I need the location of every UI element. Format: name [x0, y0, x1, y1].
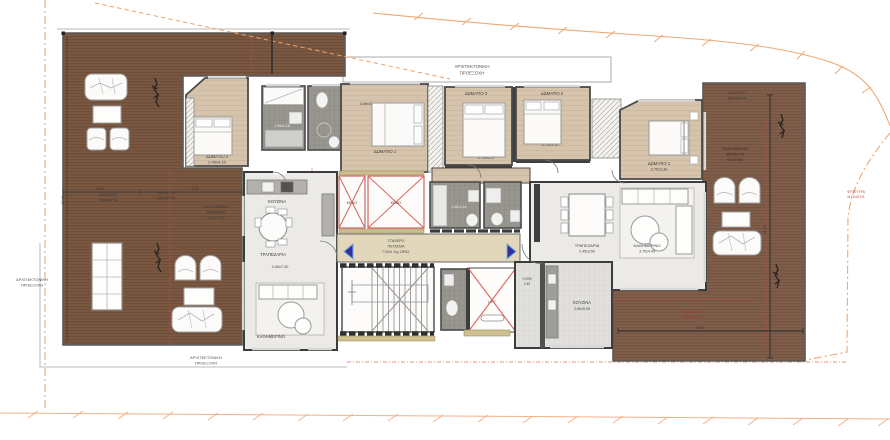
svg-text:ΚΑΘΗΜΕΡΙΝΟ: ΚΑΘΗΜΕΡΙΝΟ: [257, 334, 286, 339]
svg-text:ΚΕΝΟ: ΚΕΝΟ: [391, 201, 402, 205]
svg-text:ΔΩΜΑΤΙΟ 3: ΔΩΜΑΤΙΟ 3: [465, 91, 488, 96]
svg-text:ΠΡΟΕΞΟΧΗ: ΠΡΟΕΞΟΧΗ: [21, 283, 44, 288]
svg-text:ΔΩΜΑΤΙΟ 1: ΔΩΜΑΤΙΟ 1: [648, 161, 671, 166]
svg-text:ΑΝΟΙΚΤΗ: ΑΝΟΙΚΤΗ: [99, 192, 117, 197]
svg-text:ΓΥΑΛΙ 1ης ΩΡΑΣ: ΓΥΑΛΙ 1ης ΩΡΑΣ: [382, 250, 410, 254]
svg-text:5.10: 5.10: [192, 187, 199, 191]
svg-text:ΑΝΟΙΚΤΗ 5η: ΑΝΟΙΚΤΗ 5η: [680, 309, 703, 314]
svg-text:ΔΩΜΑΤΙΟ 1: ΔΩΜΑΤΙΟ 1: [374, 149, 397, 154]
svg-text:ΠΕΤΑΣΜΑ: ΠΕΤΑΣΜΑ: [388, 245, 406, 249]
svg-text:15.10: 15.10: [763, 226, 767, 235]
svg-text:ΒΕΡΑΝΤΑ: ΒΕΡΑΝΤΑ: [99, 198, 117, 203]
svg-text:6.02Σ ΤΜ: 6.02Σ ΤΜ: [207, 215, 224, 220]
svg-text:ΑΡΧΙΤΕΚΤΟΝΙΚΗ: ΑΡΧΙΤΕΚΤΟΝΙΚΗ: [190, 355, 222, 360]
svg-text:1.95x2.16: 1.95x2.16: [274, 124, 290, 128]
svg-text:Μ ΠΛΑΤΗΣ: Μ ΠΛΑΤΗΣ: [847, 195, 864, 199]
svg-text:ΒΕΡΑΝΤΑ: ΒΕΡΑΝΤΑ: [728, 96, 746, 101]
svg-text:ΑΡΧΙΤΕΚΤΟΝΙΚΗ: ΑΡΧΙΤΕΚΤΟΝΙΚΗ: [16, 277, 48, 282]
svg-text:ΚΑΛΥΜΜΕΝΗ: ΚΑΛΥΜΜΕΝΗ: [722, 146, 748, 151]
svg-text:ΣΤΑΘΕΡΟ: ΣΤΑΘΕΡΟ: [388, 239, 405, 243]
svg-text:ΤΡΑΠΕΖΑΡΙΑ: ΤΡΑΠΕΖΑΡΙΑ: [260, 252, 286, 257]
svg-text:ΚΕΝΟ: ΚΕΝΟ: [347, 201, 358, 205]
svg-text:ΚΑΘΗΜΕΡΙΝΟ: ΚΑΘΗΜΕΡΙΝΟ: [633, 243, 660, 248]
svg-text:ΤΡΑΠΕΖΑΡΙΑ: ΤΡΑΠΕΖΑΡΙΑ: [575, 243, 600, 248]
svg-text:3.75x3.36: 3.75x3.36: [651, 168, 668, 172]
svg-text:1.95x2.16: 1.95x2.16: [452, 205, 467, 209]
svg-text:ΑΝΟΙΚΤΗ: ΑΝΟΙΚΤΗ: [728, 90, 746, 95]
svg-text:2.45x4.15: 2.45x4.15: [208, 160, 226, 165]
svg-text:3.75x4.45: 3.75x4.45: [639, 250, 655, 254]
svg-text:4.95: 4.95: [697, 326, 704, 330]
svg-text:6.02ΤΜΣ: 6.02ΤΜΣ: [727, 157, 744, 162]
svg-text:ΒΕΡΑΝΤΑ: ΒΕΡΑΝΤΑ: [726, 152, 744, 157]
svg-text:ΔΩΜΑΤΙΟ 2: ΔΩΜΑΤΙΟ 2: [541, 91, 564, 96]
svg-text:ΚΑΛΥΜΜΕΝΗ: ΚΑΛΥΜΜΕΝΗ: [203, 204, 229, 209]
svg-text:LIFT: LIFT: [488, 299, 497, 304]
svg-text:ΠΡΟΕΞΟΧΗ: ΠΡΟΕΞΟΧΗ: [460, 71, 485, 76]
svg-text:ΠΡΟΕΞΟΧΗ: ΠΡΟΕΞΟΧΗ: [195, 361, 218, 366]
svg-text:2.45x3.59: 2.45x3.59: [579, 250, 595, 254]
svg-text:2.80x5.59: 2.80x5.59: [574, 307, 590, 311]
svg-text:Υ:2ΟΦ: Υ:2ΟΦ: [522, 277, 532, 281]
svg-text:ΑΝΟΙΚΤΗ: ΑΝΟΙΚΤΗ: [157, 190, 175, 195]
svg-text:ΚΟΥΖΙΝΑ: ΚΟΥΖΙΝΑ: [573, 300, 591, 305]
svg-text:ΒΕΡΑΝΤΑ: ΒΕΡΑΝΤΑ: [157, 196, 175, 201]
svg-text:ΦΥΤΕΥΤΡΑ: ΦΥΤΕΥΤΡΑ: [847, 190, 866, 194]
svg-text:2.40: 2.40: [524, 282, 530, 286]
svg-text:ΒΕΡΑΝΤΑ: ΒΕΡΑΝΤΑ: [207, 210, 225, 215]
svg-text:ΑΡΧΙΤΕΚΤΟΝΙΚΗ: ΑΡΧΙΤΕΚΤΟΝΙΚΗ: [454, 64, 489, 69]
svg-text:ΚΟΥΖΙΝΑ: ΚΟΥΖΙΝΑ: [268, 199, 286, 204]
svg-text:5.90: 5.90: [97, 187, 104, 191]
svg-text:ΒΕΡΑΝΤΑ: ΒΕΡΑΝΤΑ: [683, 315, 701, 320]
svg-text:4.00x7.20: 4.00x7.20: [272, 265, 289, 269]
svg-text:31.10: 31.10: [61, 196, 65, 205]
